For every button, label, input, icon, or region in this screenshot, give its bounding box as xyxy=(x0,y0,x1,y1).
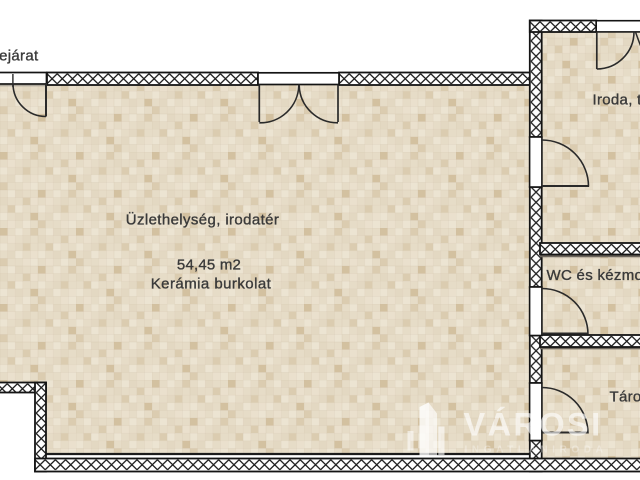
svg-text:WC és kézmosó: WC és kézmosó xyxy=(547,267,640,284)
svg-text:Üzlethelység, irodatér: Üzlethelység, irodatér xyxy=(126,211,279,229)
svg-text:Kerámia burkolat: Kerámia burkolat xyxy=(151,276,272,293)
svg-text:Iroda, tá: Iroda, tá xyxy=(593,92,640,109)
svg-text:bejárat: bejárat xyxy=(0,48,39,65)
svg-text:INGATLANIRODA: INGATLANIRODA xyxy=(465,445,608,456)
svg-text:Tároló: Tároló xyxy=(610,389,640,406)
svg-text:54,45 m2: 54,45 m2 xyxy=(177,257,241,274)
svg-text:VÁROSI: VÁROSI xyxy=(464,406,603,443)
